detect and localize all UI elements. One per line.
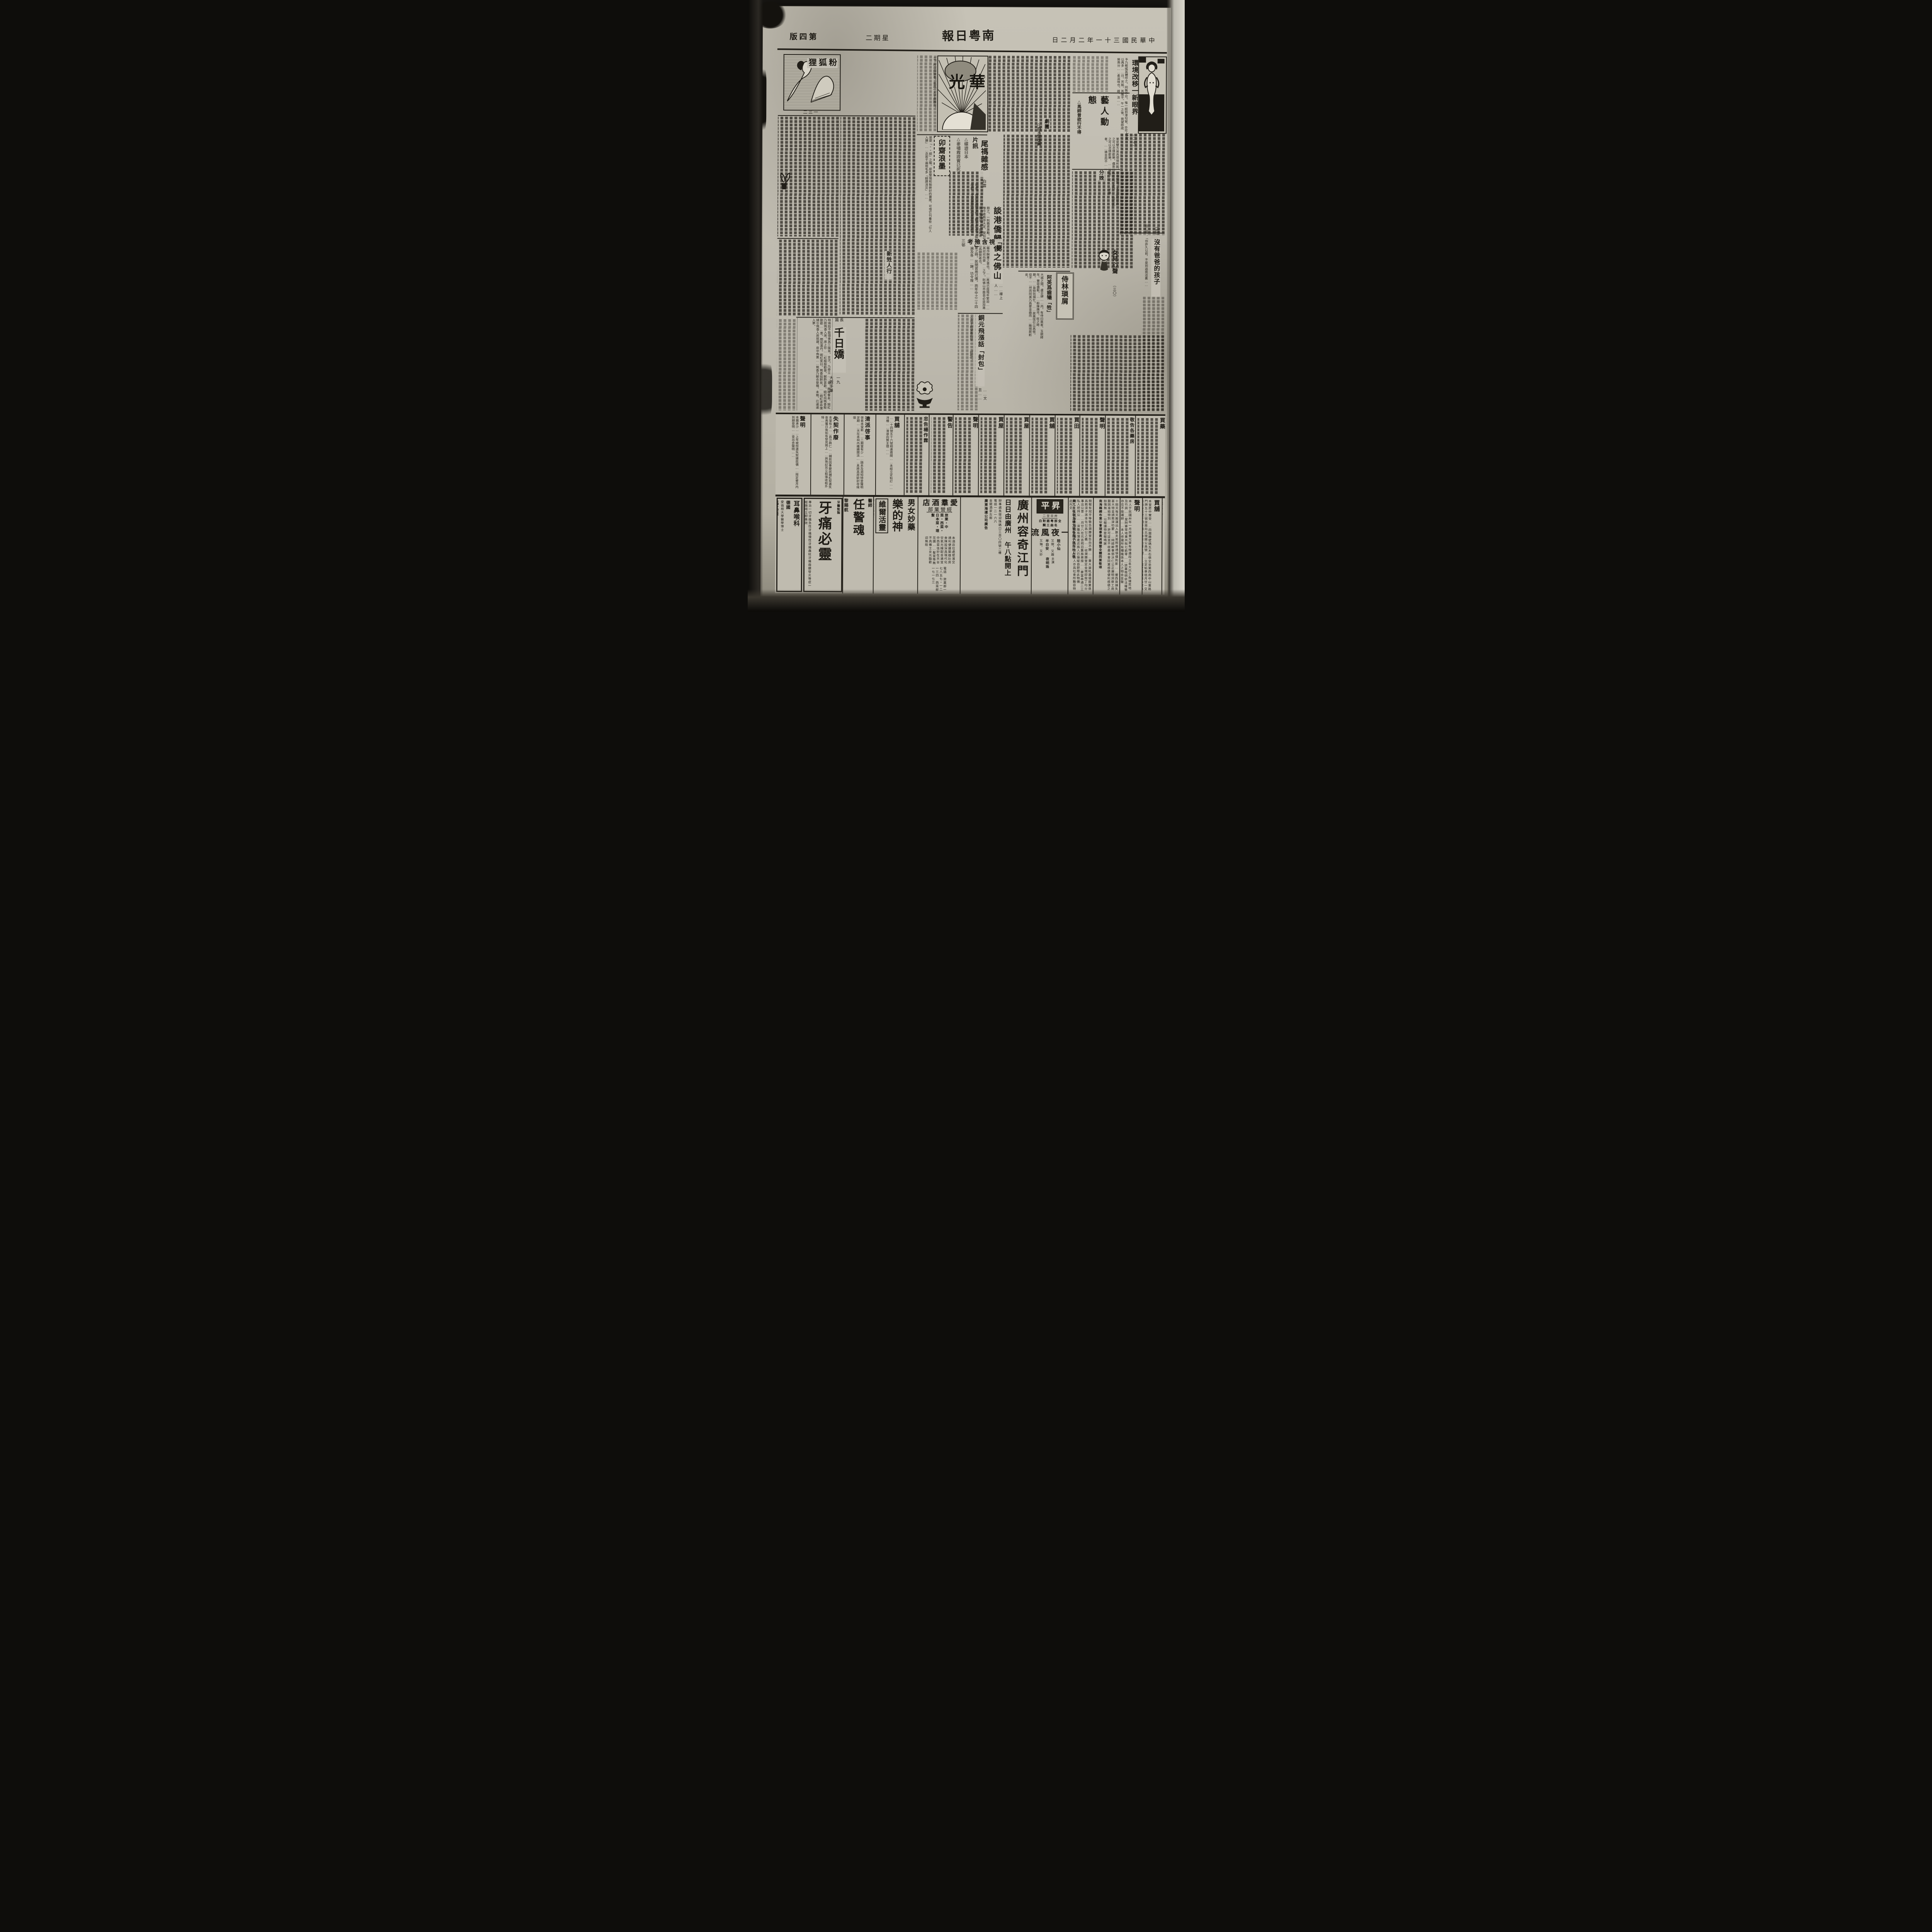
classified-heading: 買田: [1073, 417, 1079, 494]
weima-byline: 白雲: [981, 179, 986, 188]
ad-renjinghun: 醫師 任警魂 黎賜航 主理婦女醫暗病白帶閉經 麻瘋收費一元立決憂疑 會所廣州一德…: [842, 497, 873, 594]
classified-body-greeked: [1137, 418, 1158, 494]
ad-aiqun-services: 旅業・中菜・西菜・日本菜・理髮: [930, 514, 948, 536]
serial-title: 粉狐狸: [807, 58, 837, 68]
text-columns: [1141, 297, 1164, 411]
huanjing-excerpt: 予乃輕搖其體呼之。囘無不可。惟一經到港勾留。亦可以再多……日。芳姊。其醒乎。午一…: [1107, 58, 1128, 132]
qianri-excerpt: 特鳩拙不能領會其三昧耳。言次。乃旁立……昏。開晚餐矣。婉紅乃款珮香入席。席上珍……: [796, 318, 832, 410]
classified-body-greeked: [1031, 418, 1047, 493]
text-columns: [916, 252, 957, 310]
qianri-label: 長篇: [833, 318, 843, 323]
ad-toothache-body: 專治一切牙痛急性牙痛慢性牙痛蟲蛀牙痛齒齦發炎等症一經施用立即奏效: [803, 500, 811, 589]
ad-renjing-prefix: 醫師: [867, 498, 872, 508]
entertainment-item-troupe: 劇團: [1043, 119, 1050, 129]
classified-notice: 忠告楊作霖: [904, 415, 929, 495]
section-rule: [778, 115, 915, 117]
classified-heading: 敬告各藥房: [1129, 417, 1134, 495]
shilin-column-box: 侍林瑣屑: [1056, 272, 1074, 320]
notice-gongsong: 恭頌 南海縣物資配給委員會兼主任委員李公道純暨總幹事龐沃仁惠及同人……業晒莨紗綢…: [1161, 498, 1165, 595]
classified-heading: 聲明: [798, 416, 804, 493]
nver-illustration-box: 女兒心聲 （三〇）: [1095, 248, 1119, 299]
ad-toothache-maker: 牙醫監製: [836, 501, 840, 515]
shilin-title: 侍林瑣屑: [1060, 276, 1070, 305]
tangang-excerpt: 飽之。一則藉資激勵。而一則藉作酬庸之意也。……尾禡已屆殘年緊迫……惟今者秩序大定…: [964, 206, 990, 311]
classified-body-greeked: [1107, 418, 1128, 494]
scan-edge-bottom: [748, 589, 1185, 612]
classified-body: 啓者本堂新……二期當有少……踏未及週知特登聲明定期……天在本祠內繼續開派……息將…: [845, 416, 864, 490]
theatre-cast: 半日安: [1044, 539, 1049, 556]
classified-notice: 本堂有上……昌沙興仁……鋪前因事變該鋪紅契遺失查弗獲日後如有發見揭上……與珠記另…: [811, 414, 844, 495]
section-rule: [796, 317, 914, 318]
ad-renjing-title: 任警魂: [849, 498, 866, 537]
classified-notice: 買屋: [978, 415, 1004, 495]
ad-ferry-tel: 電話一二一六六: [993, 499, 997, 523]
ad-aiqun-dept: 經營業部: [927, 507, 952, 513]
theatre-cast: 陸小仙: [1056, 539, 1060, 556]
theatre-blurb: 又抽，又妙: [1039, 539, 1043, 556]
notice-statement-heading: 聲明: [1133, 500, 1141, 512]
qinshi-byline: 三邨: [959, 239, 965, 247]
classified-heading: 聲明: [971, 417, 978, 494]
classified-heading: 失契作廢: [832, 416, 838, 493]
text-columns: [988, 56, 1070, 132]
text-columns: [777, 240, 837, 316]
ad-toothache: 牙醫監製 牙痛必靈 專治一切牙痛急性牙痛慢性牙痛蟲蛀牙痛齒齦發炎等症一經施用立即…: [803, 498, 843, 592]
nver-title: 女兒心聲: [1111, 250, 1119, 274]
meiyou-title: 沒有爸爸的孩子: [1151, 239, 1161, 297]
classified-notice: 警告: [929, 415, 953, 495]
theatre-dates: 卅日至二: [1042, 514, 1058, 519]
newspaper-page: 第四版 星期二 南粤日報 中華民國三十一年二月二日: [760, 6, 1171, 599]
illustrated-serial-box: 粉狐狸: [783, 54, 841, 111]
maozhai-title: 卯齋浪墨: [937, 139, 946, 170]
theatre-cast-row: 又抽，又妙 半日安 又做，又趣 陸小仙: [1039, 539, 1060, 556]
classified-heading: 買舖: [893, 416, 899, 493]
text-columns: [776, 319, 795, 410]
ad-aiqun-hotel: 愛羣酒店 經營業部 旅業・中菜・西菜・日本菜・理髮 本酒店位處堤濱交通利便建築雄…: [917, 497, 960, 594]
classified-body: 本堂有上……昌沙興仁……鋪前因事變該鋪紅契遺失查弗獲日後如有發見揭上……與珠記另…: [811, 416, 832, 490]
classified-body-greeked: [1005, 417, 1022, 493]
notice-maipu-body: 本堂愿中實受……四圍牆壁碼瓦木石俱全坐第西南中山東路門牌五十三號坐南向北現開公昌…: [1142, 500, 1151, 592]
ad-ferry: 廣州容奇江門 日日由廣州 午八點開上 辦事處長堤迎珠碼口三百〇四號二樓 電話一二…: [960, 497, 1031, 594]
newspaper-scan: 第四版 星期二 南粤日報 中華民國三十一年二月二日: [748, 0, 1185, 612]
notice-thanks: 十餘天每天搬運出入數夫若照普通領價則影……響西貨損失甚大特呈請救濟叻蒙……純總幹…: [1092, 498, 1119, 594]
ad-toothache-title: 牙痛必靈: [814, 500, 834, 562]
section-rule: [957, 313, 1002, 314]
supplement-caption: 立。所以招致者。率爲一太平劇團云。: [927, 57, 936, 129]
classified-notice: 買屋: [1004, 415, 1030, 495]
meiyou-excerpt: 伯仁道：「你許久以前，不是到過我這裏……: [1143, 224, 1148, 296]
theatre-star-row: 夜明珠 主演: [1044, 557, 1054, 569]
classified-body: 本團承沙……上年被拐遺失契據茲價……限定壹月內到期登明……查出合聲明……: [776, 416, 799, 490]
classified-notice: 聲明: [1080, 415, 1105, 496]
masthead-title: 南粤日報: [939, 29, 993, 44]
ad-ledeshen-line1: 補血健腦強腎: [872, 498, 874, 519]
ad-ent-title: 耳鼻喉科: [791, 500, 800, 527]
notice-thanks-body: 十餘天每天搬運出入數夫若照普通領價則影……響西貨損失甚大特呈請救濟叻蒙……純總幹…: [1103, 500, 1119, 592]
theatre-role: 主演: [1051, 557, 1054, 569]
section-rule: [1018, 271, 1070, 272]
potted-plant-illustration: [778, 172, 790, 192]
section-rule: [917, 134, 987, 135]
text-columns: [864, 319, 914, 411]
nver-number: （三〇）: [1112, 284, 1117, 299]
theatre-star: 夜明珠: [1044, 557, 1049, 569]
notice-statement: 聲明 本人于民國卅年一月與黃兄買有樟邊段土名大巴之魚塘荒地及竹與……里附寨常地黃…: [1119, 498, 1141, 595]
classified-notice: 聲明: [953, 415, 979, 495]
date-line: 中華民國三十一年二月二日: [1049, 37, 1155, 45]
fruit-bowl-illustration: [914, 380, 935, 409]
classified-heading: 買屋: [1022, 417, 1029, 494]
classified-notice: ……十四號五十六號相連兩間……未經立定帖訂……洋樓……清速向賢主理…… 買舖: [876, 415, 905, 495]
classified-body-greeked: [1081, 418, 1097, 493]
text-columns: [1119, 134, 1165, 235]
ad-ferry-company: 廣東海運公司廣告: [983, 499, 988, 584]
tongyuan-title: 銅元飛漲話「封包」: [975, 315, 985, 386]
theatre-blurb: 又做，又趣: [1050, 539, 1054, 556]
standing-woman-woodcut: [1138, 57, 1164, 131]
tongyuan-byline: ……文丑……: [977, 388, 987, 410]
classified-body-greeked: [930, 417, 945, 493]
meiyou-number: （四）: [1153, 224, 1160, 238]
notice-statement-body: 本人于民國卅年一月與黃兄買有樟邊段土名大巴之魚塘荒地及竹與……里附寨常地黃共稅七…: [1119, 500, 1131, 592]
classified-body-greeked: [906, 417, 922, 493]
ad-ferry-office: 辦事處長堤迎珠碼口三百〇四號二樓: [998, 499, 1002, 554]
classified-notice: 買藥: [1135, 416, 1165, 496]
film-news-item: △麥嘯霞證實已死: [955, 137, 961, 183]
shilin-headline: 阿英爲齒犧「牲」: [1046, 275, 1052, 333]
classified-body-greeked: [1056, 418, 1072, 493]
ads-band: 耳鼻喉科 德國 愛倫根大學醫學博士 馮兆華 前任本市博愛醫院耳鼻咽喉科專門醫師 …: [775, 495, 1165, 595]
ad-shengping-theatre: 昇平 卅日至二 全部粤語對白 名曲三闋 一夜風流 又抽，又妙 半日安 又做，又趣…: [1031, 498, 1068, 594]
weekday-label: 星期二: [864, 34, 888, 43]
notice-thanks-sig: 南海縣綢布業公會理事黃貞煒暨全體同業敬頌: [1098, 499, 1102, 591]
ad-renjing-doctor: 黎賜航: [843, 498, 848, 512]
ad-ent-region: 德國: [785, 500, 790, 510]
text-columns: [839, 117, 915, 315]
classified-body-greeked: [954, 417, 971, 493]
ad-ferry-schedule: 日日由廣州 午八點開上: [1002, 499, 1012, 590]
xinsheng-title: 新甡人行: [884, 251, 892, 279]
classified-heading: 買屋: [997, 417, 1003, 494]
theatre-songs: 名曲三闋: [1042, 524, 1057, 527]
theatre-film-title: 一夜風流: [1031, 528, 1068, 538]
girl-cartoon: [1096, 248, 1112, 272]
film-news-head: 片訊: [971, 137, 979, 149]
ad-aiqun-title: 愛羣酒店: [921, 498, 957, 506]
page-number-label: 第四版: [787, 32, 816, 42]
maozhai-excerpt: 甚麼「××經」之類。原是警惕和勉幹好的寶箴。可惜它刊着些「引人入勝」……念若干遍…: [918, 136, 932, 235]
huanjing-byline: 七友: [1123, 132, 1129, 141]
qianri-title: 千日嬌: [831, 327, 846, 372]
ad-ent-clinic: 耳鼻喉科 德國 愛倫根大學醫學博士 馮兆華 前任本市博愛醫院耳鼻咽喉科專門醫師 …: [776, 498, 802, 592]
serial-number: 一三二: [802, 110, 818, 115]
qianri-number: 一九: [835, 376, 840, 384]
entertainment-title: 藝人動態: [1085, 95, 1110, 136]
classified-body: ……十四號五十六號相連兩間……未經立定帖訂……洋樓……清速向賢主理……: [876, 416, 893, 490]
classified-body-greeked: [980, 417, 996, 493]
film-news-item: △蝶遊日本: [963, 137, 968, 174]
ad-ent-doctor: 馮兆華: [776, 500, 779, 517]
scan-edge-right: [1167, 0, 1185, 612]
ad-ferry-route: 廣州容奇江門: [1012, 499, 1030, 590]
ad-ledeshen: 男女妙藥 樂的神 維爾活靈 補血健腦強腎 返老還童滋陰振性能 青年虧損老弱無能有…: [872, 497, 917, 594]
scan-tilt-wrapper: 第四版 星期二 南粤日報 中華民國三十一年二月二日: [748, 0, 1185, 612]
classified-heading: 警告: [946, 417, 952, 494]
classified-notice: 買舖: [1029, 415, 1055, 496]
theatre-lang: 全部粤語對白: [1038, 519, 1061, 523]
weima-title: 尾禡雜感: [978, 140, 989, 177]
shilin-excerpt: 大城之間。盧仝肆……丙。有侍曰英者。玉貌綺年。豐容盛鬋。……粉陳應市。旺之時期。…: [1018, 273, 1044, 339]
classified-notice: 啓者本堂新……二期當有少……踏未及週知特登聲明定期……天在本祠內繼續開派……息將…: [844, 415, 876, 495]
classified-heading: 清派啓事: [863, 416, 869, 493]
classified-heading: 聲明: [1098, 417, 1104, 494]
notice-maipu: 買舖 本堂愿中實受……四圍牆壁碼瓦木石俱全坐第西南中山東路門牌五十三號坐南向北現…: [1141, 498, 1162, 595]
classified-notice: 本團承沙……上年被拐遺失契據茲價……限定壹月內到期登明……查出合聲明…… 聲明: [775, 414, 811, 495]
supplement-logo-title: 華光: [945, 73, 985, 94]
classified-heading: 買藥: [1158, 417, 1165, 495]
classified-notice: 買田: [1055, 415, 1080, 496]
supplement-logo-box: 華光: [937, 56, 988, 133]
classified-notice: 敬告各藥房: [1105, 416, 1136, 496]
classified-heading: 買舖: [1048, 417, 1054, 494]
ad-ent-degree: 愛倫根大學醫學博士: [780, 500, 784, 532]
classified-heading: 忠告楊作霖: [923, 417, 928, 494]
notice-gongsong-heading: 恭頌: [1161, 500, 1163, 515]
entertainment-item-ma: △馬師曾欲行不得: [1076, 99, 1082, 153]
text-columns: [1072, 56, 1108, 92]
ad-ledeshen-title: 樂的神: [889, 498, 904, 532]
theatre-name: 昇平: [1036, 499, 1063, 514]
ad-aiqun-body: 本酒店位處堤濱交通利便建築雄壯房舍陳設深具現代化空氣光線配合適宜中西菜佳妙在天台…: [923, 536, 955, 566]
ad-ledeshen-cat: 男女妙藥: [905, 498, 916, 531]
notice-clan: 閱報有冠平等敬告潤勝堂告白不勝……賣大渠吼基塘屋業係爲救濟子孫本化公爲公之義………: [1067, 498, 1093, 594]
maozhai-column-box: 卯齋浪墨: [934, 136, 950, 176]
qinshi-title: 「親視含殮」考: [966, 239, 1002, 246]
entertainment-item-fenmian: 分娩: [1097, 170, 1105, 180]
classifieds-band: 本團承沙……上年被拐遺失契據茲價……限定壹月內到期登明……查出合聲明…… 聲明 …: [775, 413, 1165, 497]
masthead-rule: [777, 48, 1167, 54]
notice-maipu-heading: 買舖: [1152, 500, 1160, 512]
tongyuan-excerpt: 小孩子盼望着的發……「封包」。: [968, 316, 973, 386]
ad-ferry-landmark: 金龍酒家左鄰: [988, 499, 992, 520]
scan-edge-left: [748, 0, 763, 612]
notice-clan-body: 閱報有冠平等敬告潤勝堂告白不勝……賣大渠吼基塘屋業係爲救濟子孫本化公爲公之義………: [1076, 499, 1092, 591]
ad-aiqun-tel: 電話 旅業部一七八五七・一二一三四 西菜部一七一七三: [931, 567, 946, 592]
entertainment-item-baiyutang: △白玉堂復興: [1036, 122, 1041, 160]
section-rule: [777, 238, 838, 239]
woodcut-illustration-box: [1138, 56, 1167, 134]
tangang-byline: ……禪上人……: [993, 284, 1003, 311]
ad-ledeshen-product: 維爾活靈: [875, 498, 888, 533]
huanjing-number: （二七）: [1131, 132, 1136, 149]
